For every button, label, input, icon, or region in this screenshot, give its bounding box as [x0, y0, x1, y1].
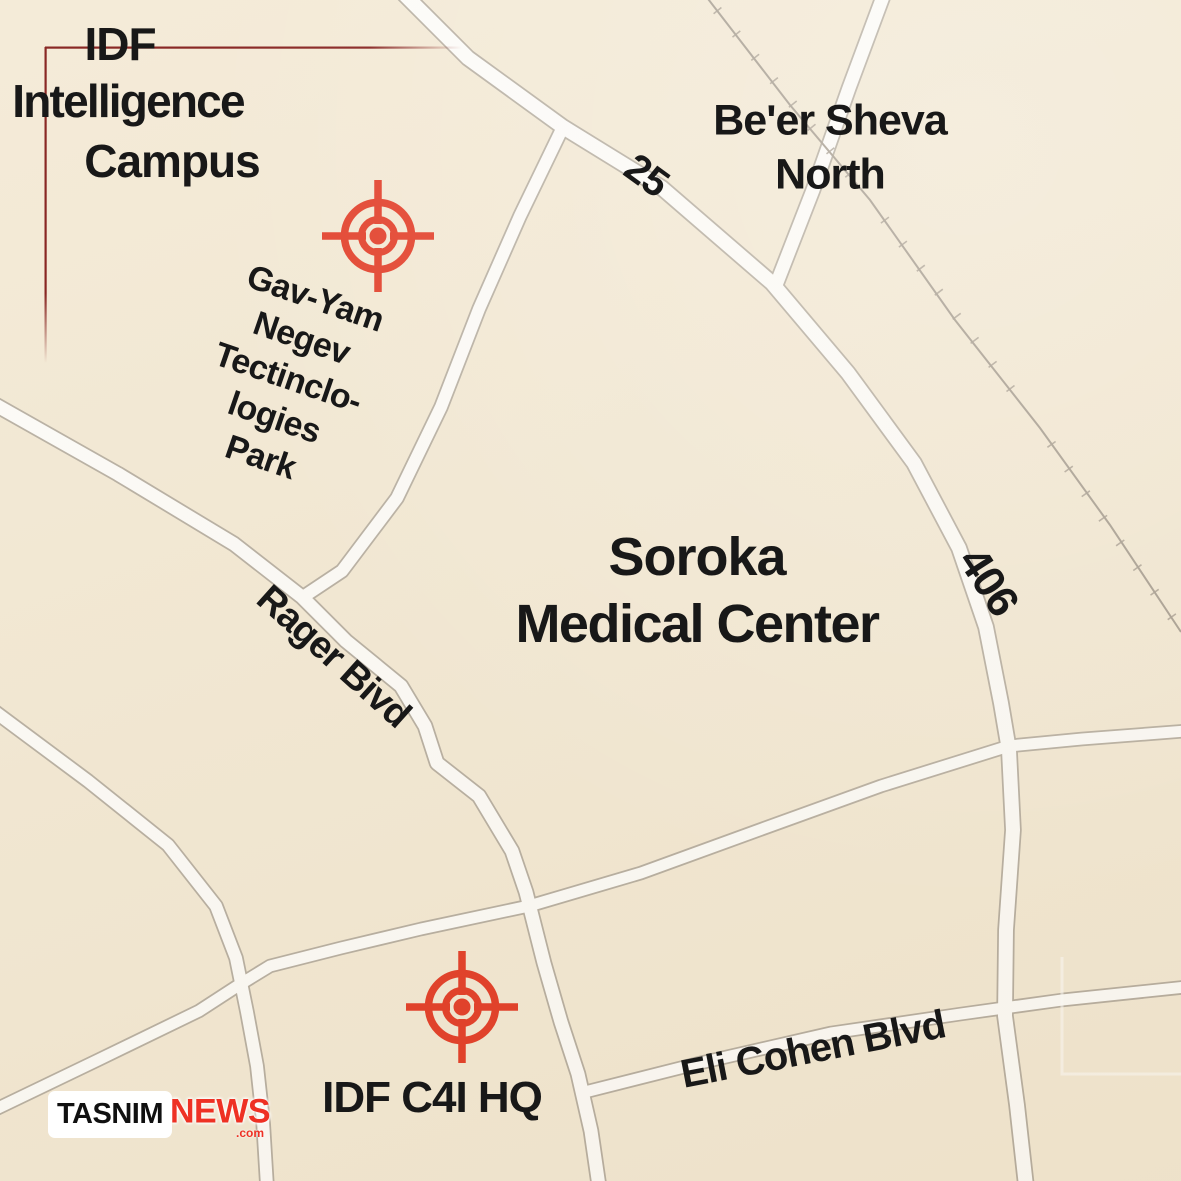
faint-frame-corner [1062, 957, 1181, 1074]
label-idf-campus-line3: Campus [84, 134, 259, 188]
label-idf-campus-line1: IDF [84, 17, 155, 71]
tasnim-logo-brand: TASNIM [57, 1098, 163, 1131]
label-idf-campus-line2: Intelligence [12, 74, 243, 128]
tasnim-logo: TASNIM [48, 1091, 172, 1138]
tasnim-logo-domain: .com [236, 1126, 264, 1140]
label-soroka-line2: Medical Center [515, 593, 878, 655]
target-marker-c4i-icon [406, 951, 518, 1063]
label-soroka-line1: Soroka [608, 526, 785, 588]
map-canvas: IDF Intelligence Campus Be'er Sheva Nort… [0, 0, 1181, 1181]
label-idf-c4i-hq: IDF C4I HQ [322, 1073, 542, 1123]
target-marker-gav-yam-icon [322, 180, 434, 292]
label-beer-sheva-north-line2: North [775, 151, 885, 200]
label-beer-sheva-north-line1: Be'er Sheva [713, 97, 946, 146]
